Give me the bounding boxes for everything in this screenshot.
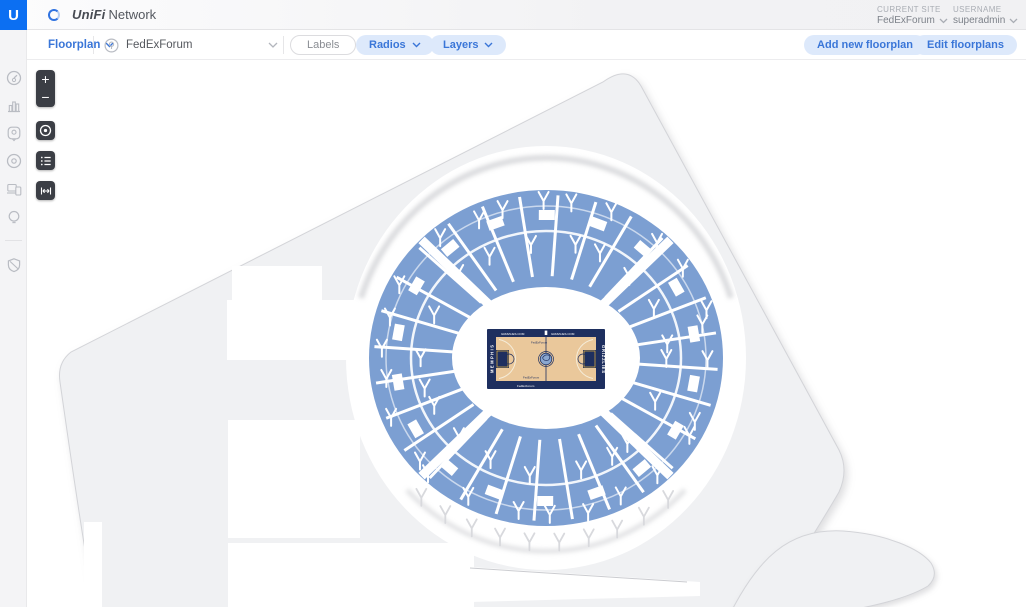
locate-target-icon xyxy=(38,123,53,138)
chevron-down-icon xyxy=(484,42,493,48)
layers-dropdown-button[interactable]: Layers xyxy=(430,35,506,55)
floorplan-site-value: FedExForum xyxy=(126,39,192,51)
username-value: superadmin xyxy=(953,15,1005,26)
edit-floorplans-button[interactable]: Edit floorplans xyxy=(914,35,1017,55)
court-ad-left: GRIZZLIES.COM xyxy=(501,332,525,336)
current-site-select[interactable]: FedExForum xyxy=(877,15,948,26)
current-site-label: CURRENT SITE xyxy=(877,4,948,15)
basketball-court: GRIZZLIES.COM GRIZZLIES.COM FedExForum M… xyxy=(487,329,606,389)
product-title: UniFiNetwork xyxy=(72,7,156,22)
toolbar-divider xyxy=(283,36,284,54)
sidebar-divider xyxy=(5,240,22,241)
floorplan-list-button[interactable] xyxy=(36,151,55,170)
insights-bulb-icon[interactable] xyxy=(5,208,23,226)
username-select[interactable]: superadmin xyxy=(953,15,1018,26)
ubiquiti-logo[interactable]: U xyxy=(0,0,27,30)
radios-dropdown-button[interactable]: Radios xyxy=(356,35,434,55)
court-text-top: FedExForum xyxy=(531,341,548,345)
toolbar-divider xyxy=(93,36,94,54)
locate-button[interactable] xyxy=(36,121,55,140)
current-site-value: FedExForum xyxy=(877,15,935,26)
location-pin-icon xyxy=(103,37,120,54)
chevron-down-icon[interactable] xyxy=(268,42,278,49)
devices-circle-icon[interactable] xyxy=(5,152,23,170)
radios-label: Radios xyxy=(369,39,406,51)
chevron-down-icon xyxy=(939,18,948,24)
measure-button[interactable] xyxy=(36,181,55,200)
zoom-in-button[interactable]: + xyxy=(36,71,55,89)
floorplan-list-icon xyxy=(39,154,53,168)
floorplan-toolbar: Floorplan FedExForum Labels Radios Layer… xyxy=(27,30,1026,60)
current-site-block: CURRENT SITE FedExForum xyxy=(877,4,948,26)
settings-shield-icon[interactable] xyxy=(5,256,23,274)
username-block: USERNAME superadmin xyxy=(953,4,1018,26)
loading-spinner-icon xyxy=(48,9,60,21)
top-bar: U UniFiNetwork CURRENT SITE FedExForum U… xyxy=(0,0,1026,30)
dashboard-gauge-icon[interactable] xyxy=(5,69,23,87)
nba-logo xyxy=(545,331,548,335)
chevron-down-icon xyxy=(1009,18,1018,24)
court-text-bottom: FedExForum xyxy=(523,376,540,380)
court-bottom-band-text: FedExForum xyxy=(517,384,535,388)
brand-unifi: UniFi xyxy=(72,7,106,22)
zoom-out-button[interactable]: − xyxy=(36,89,55,107)
clients-devices-icon[interactable] xyxy=(5,180,23,198)
labels-button[interactable]: Labels xyxy=(290,35,356,55)
username-label: USERNAME xyxy=(953,4,1018,15)
brand-network: Network xyxy=(109,7,157,22)
layers-label: Layers xyxy=(443,39,478,51)
add-new-floorplan-button[interactable]: Add new floorplan xyxy=(804,35,926,55)
floorplan-map-canvas[interactable]: GRIZZLIES.COM GRIZZLIES.COM FedExForum M… xyxy=(27,60,1026,607)
arena-floorplan: GRIZZLIES.COM GRIZZLIES.COM FedExForum M… xyxy=(27,60,1026,607)
left-sidebar xyxy=(0,30,27,607)
zoom-controls: + − xyxy=(36,70,55,107)
court-baseline-grizzlies: GRIZZLIES xyxy=(601,345,606,373)
map-pin-icon[interactable] xyxy=(5,124,23,142)
statistics-bars-icon[interactable] xyxy=(5,97,23,115)
measure-width-icon xyxy=(39,184,53,198)
court-ad-right: GRIZZLIES.COM xyxy=(551,332,575,336)
chevron-down-icon xyxy=(412,42,421,48)
floorplan-site-select[interactable]: FedExForum xyxy=(103,30,283,60)
